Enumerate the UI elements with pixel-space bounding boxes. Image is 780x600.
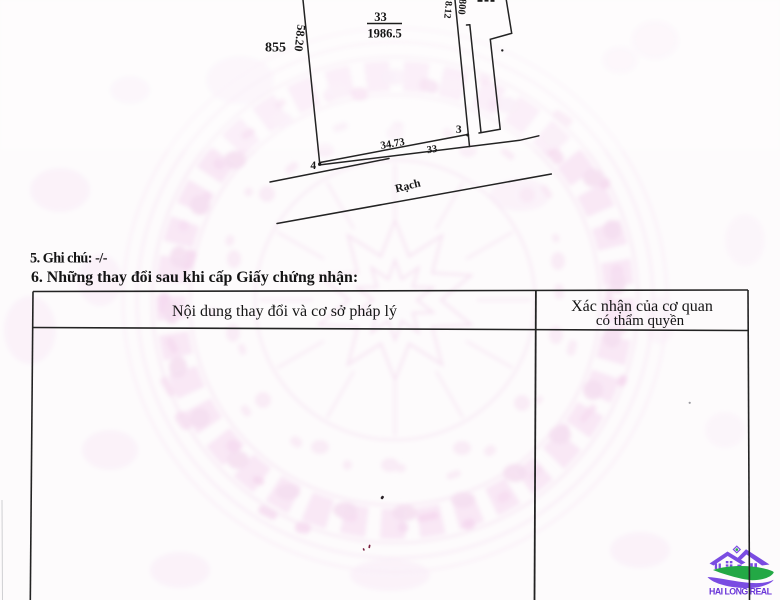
svg-text:3: 3 (456, 124, 462, 136)
svg-text:33: 33 (374, 10, 387, 24)
svg-text:6. Những thay đổi sau khi cấp: 6. Những thay đổi sau khi cấp Giấy chứng… (31, 269, 358, 286)
svg-text:1986.5: 1986.5 (367, 27, 401, 41)
svg-text:Nội dung thay đổi và cơ sở phá: Nội dung thay đổi và cơ sở pháp lý (172, 303, 397, 320)
svg-text:800: 800 (455, 0, 467, 15)
svg-text:8.12: 8.12 (441, 1, 453, 19)
svg-text:4: 4 (310, 160, 316, 172)
svg-text:33: 33 (426, 144, 438, 157)
svg-text:855: 855 (265, 41, 286, 56)
svg-text:5. Ghi chú: -/-: 5. Ghi chú: -/- (30, 251, 108, 267)
svg-text:HAI LONG REAL: HAI LONG REAL (709, 587, 773, 597)
svg-text:có thẩm quyền: có thẩm quyền (596, 313, 685, 329)
